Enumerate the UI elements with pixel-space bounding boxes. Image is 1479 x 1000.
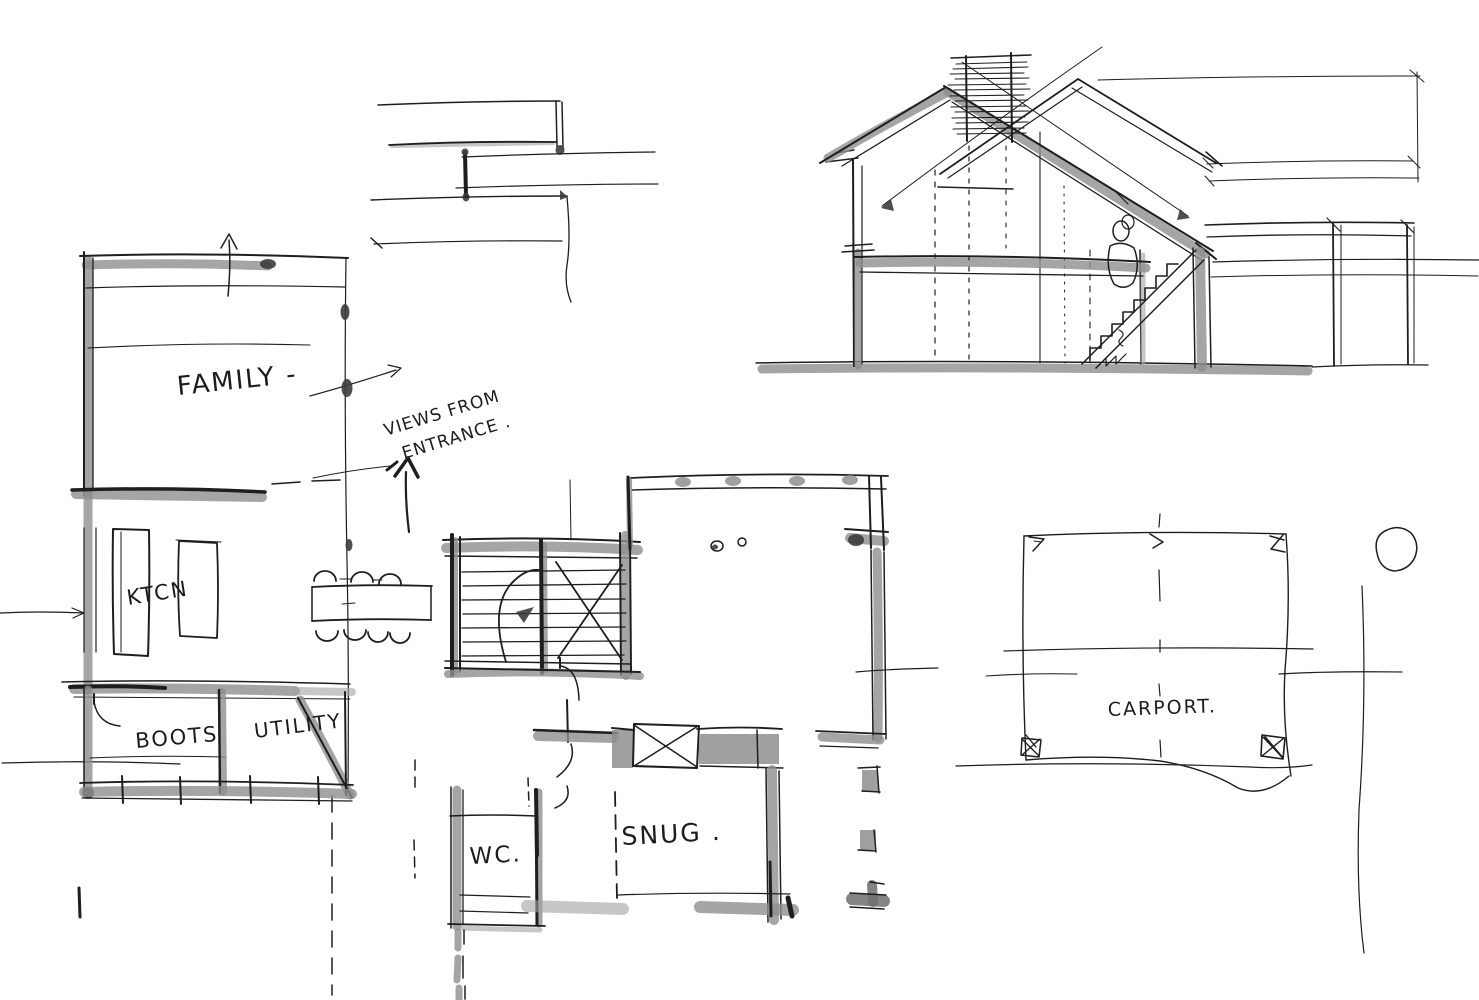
fireplace — [612, 724, 783, 768]
porch-column — [675, 477, 691, 487]
porch-column — [789, 476, 805, 486]
snug-room: SNUG . — [527, 768, 793, 922]
chair — [351, 572, 373, 582]
boundary-line — [1358, 586, 1364, 953]
hall-right-wall-marker — [877, 552, 878, 738]
entrance-arrow-shaft — [406, 472, 409, 532]
sketch-page: FAMILY - KTCN — [0, 0, 1479, 1000]
rear-roof-right — [1078, 79, 1216, 163]
wc-room: WC. — [448, 787, 545, 999]
kitchen: KTCN — [62, 489, 352, 699]
sketch-canvas: FAMILY - KTCN — [0, 0, 1479, 1000]
section-drawing — [756, 47, 1479, 371]
corner-mark — [1029, 537, 1044, 551]
carport-left-edge — [1023, 536, 1026, 760]
floor-slab — [855, 256, 1150, 276]
chair — [314, 571, 336, 581]
carport-top-edge — [1024, 532, 1286, 536]
snug-open-edge — [615, 792, 617, 900]
dimension-line — [1207, 161, 1419, 181]
porch-column — [842, 475, 858, 485]
pier-columns — [850, 766, 886, 909]
family-room: FAMILY - — [80, 234, 401, 495]
carport-plan: CARPORT. — [956, 514, 1417, 953]
stairs — [443, 480, 640, 676]
door-swing — [555, 786, 568, 808]
corner-mark — [1270, 535, 1285, 552]
floor-plan: FAMILY - KTCN — [0, 234, 938, 999]
chair — [368, 632, 388, 642]
column-blob — [346, 539, 353, 551]
stair-arrow-head — [516, 607, 534, 623]
carport-centerline — [1159, 514, 1161, 757]
column-blob — [342, 379, 353, 397]
porch-column — [725, 476, 741, 486]
chair — [390, 633, 410, 643]
chimney-hatch — [948, 67, 1030, 134]
tree-circle — [1376, 528, 1417, 571]
corner-mark — [1150, 534, 1163, 548]
south-wall — [80, 776, 353, 804]
dining-area — [312, 571, 432, 643]
dining-table — [312, 585, 432, 587]
wc-label: WC. — [469, 841, 522, 870]
fireplace-cross — [634, 725, 698, 767]
chair — [379, 574, 401, 584]
kitchen-label: KTCN — [125, 577, 190, 610]
person-head — [1113, 221, 1129, 241]
door-dot — [738, 538, 746, 546]
carport-bottom-edge — [1026, 757, 1289, 791]
carport-ground-line — [956, 764, 1312, 768]
views-annotation: VIEWS FROM ENTRANCE . — [382, 387, 514, 532]
view-arrow-line — [310, 370, 396, 396]
chair — [316, 631, 338, 641]
carport-label: CARPORT. — [1107, 695, 1217, 721]
family-top-wall-marker — [86, 264, 268, 266]
dimension-line — [1098, 76, 1420, 80]
chair — [344, 630, 366, 640]
extension-roof-beam — [1205, 222, 1414, 225]
stair-cross — [556, 562, 622, 660]
boots-utility-wall-marker — [222, 692, 223, 792]
utility-label: UTILITY — [253, 708, 344, 743]
kitchen-bottom-wall-marker — [74, 688, 295, 691]
roof-level-lines — [371, 101, 658, 302]
boots-door-swing — [94, 702, 120, 726]
extension-posts — [1333, 223, 1408, 366]
sight-line — [962, 62, 1188, 216]
door-swing — [557, 744, 572, 777]
sight-line — [882, 47, 1102, 206]
pier — [862, 770, 878, 792]
column-blob — [341, 304, 350, 320]
stair-zigzag — [1090, 264, 1178, 360]
lobby-doors — [528, 658, 617, 808]
family-label: FAMILY - — [176, 359, 299, 401]
snug-right-wall-marker — [772, 770, 774, 920]
snug-label: SNUG . — [621, 817, 723, 851]
boots-label: BOOTS — [134, 722, 219, 753]
roof-right-slope-marker — [948, 92, 1206, 254]
section-walls — [826, 132, 1143, 366]
